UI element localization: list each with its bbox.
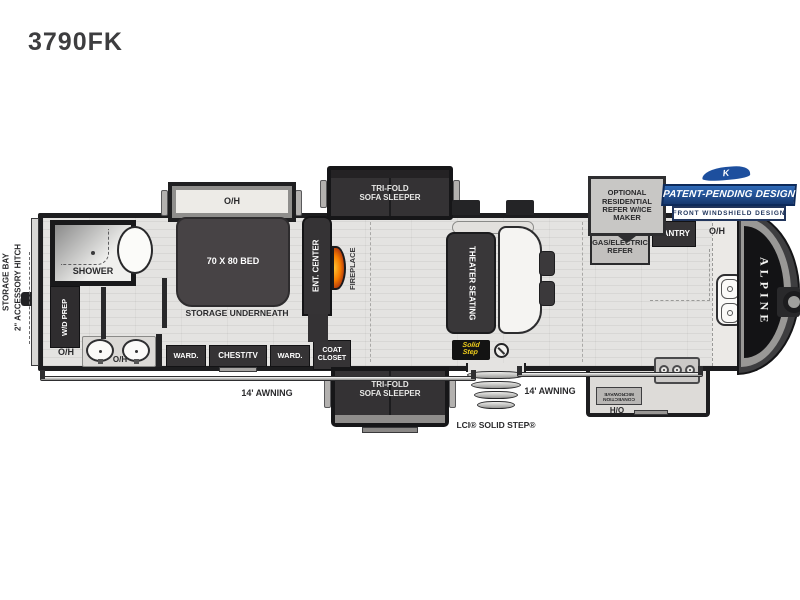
bath-wall-stub: [101, 287, 106, 339]
cooktop: [654, 357, 700, 384]
kitchen-island: [498, 226, 542, 334]
oh-label-kitchen-slide: O/H: [602, 404, 632, 413]
ent-center: ENT. CENTER: [302, 216, 332, 316]
bed-slide-tab-left: [161, 190, 168, 216]
sofa-bottom-label: TRI-FOLD SOFA SLEEPER: [335, 381, 445, 399]
sofa-bottom-edge: [335, 415, 445, 423]
storage-bay-label: STORAGE BAY: [1, 230, 13, 334]
shower-label: SHOWER: [55, 266, 131, 276]
floorplan-canvas: 3790FK STORAGE BAY 2" ACCESSORY HITCH O/…: [0, 0, 800, 600]
sofa-slide-top: TRI-FOLD SOFA SLEEPER: [327, 166, 453, 220]
sofa-top-backrest: [331, 170, 449, 178]
chest-tv: CHEST/TV: [209, 345, 267, 367]
bath-wall-divider: [156, 334, 162, 367]
step-4: [477, 401, 515, 409]
theater-seating: THEATER SEATING: [446, 232, 496, 334]
patent-banner-text: PATENT-PENDING DESIGN: [662, 189, 795, 200]
rear-bumper: [31, 218, 39, 366]
microwave-label: CONVECTION MICROWAVE: [603, 391, 635, 402]
kingpin-ring: [783, 291, 800, 313]
floor-dash-1: [370, 222, 371, 362]
brand-name: ALPINE: [757, 257, 772, 326]
lci-logo-circle: [494, 343, 509, 358]
wd-prep: W/D PREP: [50, 286, 80, 348]
hitch-guide-line: [29, 252, 30, 344]
awning-rail-right: [517, 372, 703, 377]
ent-center-wall: [308, 314, 328, 342]
awning-rail-left: [40, 376, 476, 381]
bedroom-wall-stub: [162, 278, 167, 328]
sofa-top-tab-left: [320, 180, 327, 208]
wardrobe-right: WARD.: [270, 345, 310, 367]
patent-subtitle-text: FRONT WINDSHIELD DESIGN: [673, 210, 786, 217]
accessory-hitch-label: 2" ACCESSORY HITCH: [13, 222, 25, 352]
theater-slide-stub-right: [506, 200, 534, 215]
solid-step-badge: Solid Step: [452, 340, 490, 360]
bar-stool-1: [539, 251, 555, 276]
optional-refer-callout: OPTIONAL RESIDENTIAL REFER W/ICE MAKER: [588, 176, 666, 236]
sofa-bottom-tab-left: [324, 378, 331, 408]
sofa-top-label: TRI-FOLD SOFA SLEEPER: [331, 185, 449, 203]
wardrobe-left: WARD.: [166, 345, 206, 367]
counter-dash: [650, 249, 710, 301]
shower-drain: [91, 251, 95, 255]
shower-dash: [61, 229, 109, 265]
model-title: 3790FK: [28, 28, 148, 56]
kitchen-slide-tab: [634, 410, 668, 415]
bed: 70 X 80 BED: [176, 217, 290, 307]
bedroom-overhead-cabinet: O/H: [176, 190, 288, 213]
sofa-bottom-tab-right: [449, 378, 456, 408]
oh-label-top-right: O/H: [700, 226, 734, 236]
patent-subtitle-box: FRONT WINDSHIELD DESIGN: [672, 206, 786, 221]
theater-slide-stub-left: [452, 200, 480, 215]
awning-label-left: 14' AWNING: [214, 388, 320, 398]
bar-stool-2: [539, 281, 555, 306]
toilet: [117, 226, 153, 274]
oh-label-bath-corner: O/H: [48, 347, 84, 357]
storage-underneath-label: STORAGE UNDERNEATH: [152, 309, 322, 319]
bed-slide-tab-right: [295, 190, 302, 216]
awning-label-right: 14' AWNING: [497, 386, 603, 396]
keystone-logo-letter: K: [722, 168, 729, 179]
keystone-logo: K: [702, 165, 751, 182]
coat-closet: COAT CLOSET: [313, 340, 351, 370]
fireplace-label: FIREPLACE: [347, 238, 359, 300]
sofa-bottom-cap: [362, 427, 418, 433]
bedroom-slide: O/H: [168, 182, 296, 222]
patent-banner: PATENT-PENDING DESIGN: [661, 184, 797, 206]
oh-label-vanity: O/H: [102, 356, 138, 365]
floor-dash-2: [582, 222, 583, 362]
tv-strip: [219, 367, 257, 372]
solid-step-badge-text: Solid Step: [462, 343, 481, 356]
